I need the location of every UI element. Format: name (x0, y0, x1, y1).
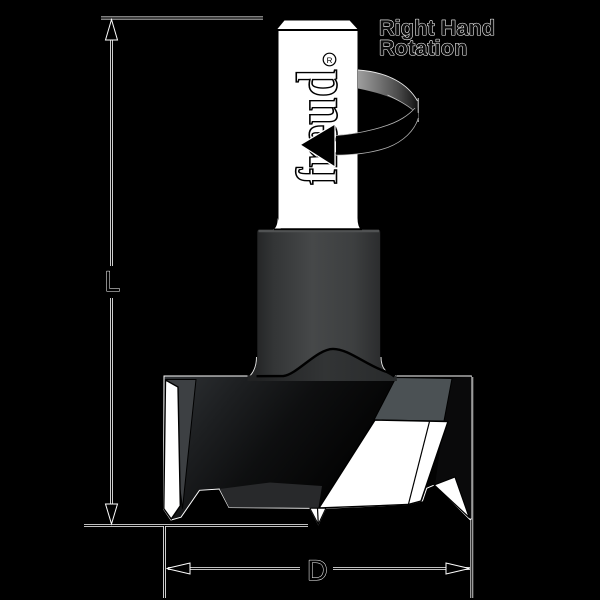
svg-text:D: D (307, 555, 328, 587)
svg-text:Rotation: Rotation (379, 36, 467, 60)
svg-text:R: R (327, 56, 333, 65)
svg-text:L: L (105, 266, 121, 298)
svg-text:freud: freud (285, 70, 350, 185)
